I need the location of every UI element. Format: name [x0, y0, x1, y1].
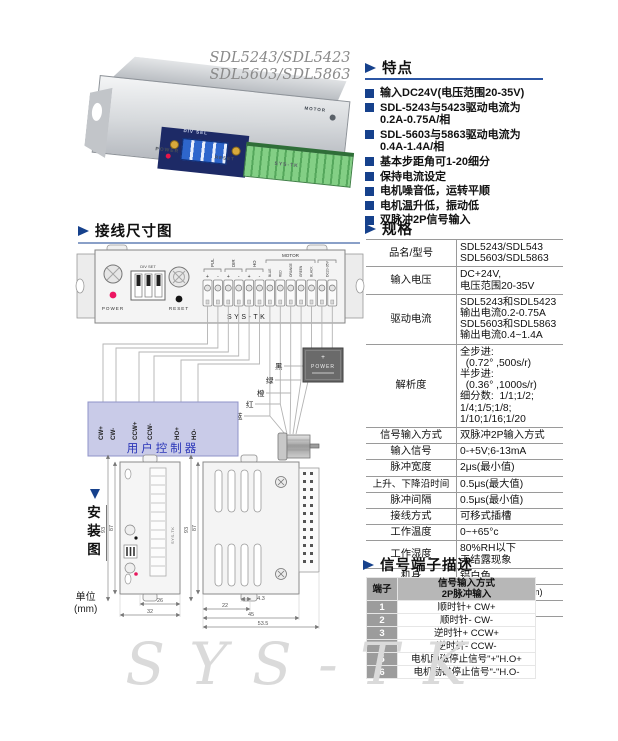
- spec-value: 0.5μs(最小值): [457, 492, 564, 508]
- feature-item: SDL-5243与5423驱动电流为 0.2A-0.75A/相: [365, 102, 617, 127]
- spec-label: 脉冲宽度: [366, 460, 457, 476]
- svg-text:BLUE: BLUE: [268, 269, 272, 277]
- feature-item: 基本步距角可1-20细分: [365, 156, 617, 169]
- user-controller-box: CW+ CW- CCW+ CCW- HO+ HO- 用户控制器: [88, 402, 238, 456]
- feature-text: 保持电流设定: [380, 171, 446, 184]
- signals-heading-text: 信号端子描述: [380, 554, 473, 575]
- feature-text: SDL-5603与5863驱动电流为 0.4A-1.4A/相: [380, 129, 521, 154]
- connector-pin-block: [299, 468, 319, 572]
- dip-label: DIV SEL: [183, 128, 208, 136]
- spec-value: 0-+5V;6-13mA: [457, 444, 564, 460]
- pin-description: 顺时针+ CW+: [398, 601, 536, 614]
- pin-number: 1: [367, 601, 398, 614]
- specs-heading-text: 规格: [382, 218, 413, 239]
- datasheet-page: DIV SEL POWER RESET SYS-TK MOTOR SDL5243…: [0, 0, 618, 741]
- power-supply-box: + POWER: [303, 348, 343, 382]
- section-heading-specs: 规格: [365, 218, 413, 239]
- spec-row: 输入电压DC+24V, 电压范围20-35V: [366, 267, 563, 294]
- pul-label: PUL: [210, 258, 215, 267]
- wiring-diagram: POWER DIV SET RESET + -: [75, 244, 365, 470]
- trim-pot-icon: [231, 146, 241, 156]
- svg-text:HO+: HO+: [174, 427, 181, 440]
- bullet-square-icon: [365, 201, 374, 210]
- spec-label: 解析度: [366, 344, 457, 427]
- bullet-square-icon: [365, 157, 374, 166]
- svg-text:HO-: HO-: [191, 429, 198, 440]
- pin-column-header: 端子: [367, 578, 398, 601]
- bullet-square-icon: [365, 89, 374, 98]
- svg-text:绿: 绿: [266, 376, 274, 385]
- spec-row: 信号输入方式双脉冲2P输入方式: [366, 428, 563, 444]
- svg-text:黑: 黑: [275, 362, 283, 371]
- spec-label: 输入信号: [366, 444, 457, 460]
- model-title: SDL5243/SDL5423 SDL5603/SDL5863: [192, 50, 368, 84]
- watermark: SYS-TK: [28, 634, 588, 694]
- feature-text: 电机温升低，振动低: [380, 200, 479, 213]
- spec-label: 脉冲间隔: [366, 492, 457, 508]
- spec-label: 驱动电流: [366, 294, 457, 344]
- signal-column-header: 信号输入方式 2P脉冲输入: [398, 578, 536, 601]
- spec-row: 解析度全步进: (0.72° ,500s/r) 半步进: (0.36° ,100…: [366, 344, 563, 427]
- feature-text: 输入DC24V(电压范围20-35V): [380, 87, 524, 100]
- arrow-right-icon: [365, 224, 376, 234]
- mounting-hole: [91, 102, 103, 121]
- feature-item: 电机噪音低，运转平顺: [365, 185, 617, 198]
- signal-row: 1顺时针+ CW+: [367, 601, 536, 614]
- spec-value: DC+24V, 电压范围20-35V: [457, 267, 564, 294]
- model-line2: SDL5603/SDL5863: [192, 67, 368, 84]
- svg-text:45: 45: [248, 612, 254, 618]
- signal-row: 2顺时针- CW-: [367, 614, 536, 627]
- dir-label: DIR: [231, 259, 236, 267]
- reset-button: [176, 296, 183, 303]
- features-underline: [365, 78, 543, 80]
- spec-row: 上升、下降沿时间0.5μs(最大值): [366, 476, 563, 492]
- dc-group-label: DC20-35V: [326, 260, 330, 277]
- spec-value: SDL5243/SDL543 SDL5603/SDL5863: [457, 240, 564, 267]
- pin-number: 2: [367, 614, 398, 627]
- spec-row: 驱动电流SDL5243和SDL5423 输出电流0.2-0.75A SDL560…: [366, 294, 563, 344]
- bullet-square-icon: [365, 130, 374, 139]
- spec-value: 0.5μs(最大值): [457, 476, 564, 492]
- spec-row: 脉冲宽度2μs(最小值): [366, 460, 563, 476]
- svg-text:橙: 橙: [257, 388, 265, 398]
- spec-row: 工作温度0~+65°c: [366, 525, 563, 541]
- svg-text:GREEN: GREEN: [299, 265, 303, 277]
- faceplate-brand: SYS-TK: [227, 314, 267, 321]
- model-line1: SDL5243/SDL5423: [192, 50, 368, 67]
- svg-text:+: +: [227, 274, 230, 280]
- signal-header-row: 端子 信号输入方式 2P脉冲输入: [367, 578, 536, 601]
- ho-label: HO: [252, 260, 257, 267]
- pin-description: 顺时针- CW-: [398, 614, 536, 627]
- signal-header-line1: 信号输入方式: [400, 578, 533, 589]
- screw-icon: [329, 114, 336, 121]
- spec-value: SDL5243和SDL5423 输出电流0.2-0.75A SDL5603和SD…: [457, 294, 564, 344]
- svg-text:+: +: [206, 274, 209, 280]
- front-view: SYS-TK 93 87 26 32: [101, 455, 180, 617]
- svg-text:26: 26: [157, 598, 163, 604]
- unit-label: 单位 (mm): [74, 592, 97, 616]
- spec-label: 信号输入方式: [366, 428, 457, 444]
- spec-row: 品名/型号SDL5243/SDL543 SDL5603/SDL5863: [366, 240, 563, 267]
- svg-text:RED: RED: [278, 270, 282, 277]
- signal-header-line2: 2P脉冲输入: [400, 589, 533, 600]
- bullet-square-icon: [365, 172, 374, 181]
- svg-text:CW+: CW+: [98, 426, 105, 440]
- arrow-right-icon: [78, 226, 89, 236]
- wiring-heading-text: 接线尺寸图: [95, 220, 173, 241]
- spec-label: 接线方式: [366, 509, 457, 525]
- svg-text:93: 93: [184, 527, 190, 533]
- terminal-strip: [150, 468, 166, 576]
- motor-group-label: MOTOR: [282, 253, 300, 258]
- svg-text:BLACK: BLACK: [310, 266, 314, 277]
- spec-value: 可移式插槽: [457, 509, 564, 525]
- front-brand-label: SYS-TK: [170, 527, 175, 544]
- svg-text:CCW-: CCW-: [147, 423, 154, 440]
- svg-text:87: 87: [192, 525, 198, 531]
- dip-switch: [180, 138, 228, 165]
- spec-row: 接线方式可移式插槽: [366, 509, 563, 525]
- svg-text:87: 87: [109, 525, 115, 531]
- bullet-square-icon: [365, 103, 374, 112]
- spec-row: 脉冲间隔0.5μs(最小值): [366, 492, 563, 508]
- spec-label: 输入电压: [366, 267, 457, 294]
- power-label: POWER: [102, 306, 124, 311]
- feature-item: SDL-5603与5863驱动电流为 0.4A-1.4A/相: [365, 129, 617, 154]
- installation-diagram: SYS-TK 93 87 26 32: [95, 452, 345, 647]
- spec-value: 全步进: (0.72° ,500s/r) 半步进: (0.36° ,1000s/…: [457, 344, 564, 427]
- arrow-right-icon: [365, 63, 376, 73]
- driver-faceplate: POWER DIV SET RESET + -: [76, 245, 364, 323]
- spec-value: 2μs(最小值): [457, 460, 564, 476]
- supply-power-label: POWER: [311, 364, 335, 370]
- svg-text:53.5: 53.5: [258, 621, 269, 627]
- spec-label: 品名/型号: [366, 240, 457, 267]
- spec-value: 双脉冲2P输入方式: [457, 428, 564, 444]
- dip-set-label: DIV SET: [140, 264, 156, 269]
- feature-item: 保持电流设定: [365, 171, 617, 184]
- feature-text: SDL-5243与5423驱动电流为 0.2A-0.75A/相: [380, 102, 521, 127]
- svg-text:4.3: 4.3: [257, 596, 265, 602]
- features-heading-text: 特点: [382, 57, 413, 78]
- motor-label: MOTOR: [304, 106, 326, 113]
- arrow-right-icon: [363, 560, 374, 570]
- feature-text: 基本步距角可1-20细分: [380, 156, 490, 169]
- svg-text:CCW+: CCW+: [132, 421, 139, 440]
- svg-text:红: 红: [246, 399, 254, 409]
- power-led: [165, 153, 170, 158]
- spec-row: 输入信号0-+5V;6-13mA: [366, 444, 563, 460]
- mounting-slot: [76, 279, 84, 293]
- svg-text:+: +: [248, 274, 251, 280]
- feature-text: 电机噪音低，运转平顺: [380, 185, 490, 198]
- supply-plus-label: +: [321, 354, 325, 361]
- section-heading-wiring: 接线尺寸图: [78, 220, 173, 241]
- power-led: [110, 292, 117, 299]
- spec-label: 工作温度: [366, 525, 457, 541]
- svg-text:93: 93: [101, 527, 107, 533]
- spec-value: 0~+65°c: [457, 525, 564, 541]
- svg-text:CW-: CW-: [110, 428, 117, 440]
- section-heading-features: 特点: [365, 57, 413, 78]
- svg-text:32: 32: [147, 609, 153, 615]
- svg-text:22: 22: [222, 603, 228, 609]
- feature-item: 电机温升低，振动低: [365, 200, 617, 213]
- features-list: 输入DC24V(电压范围20-35V) SDL-5243与5423驱动电流为 0…: [365, 87, 617, 229]
- side-view: 93 87 4.3 22 45 53.5: [184, 455, 319, 629]
- wire-color-labels: 蓝 红 橙 绿 黑: [235, 362, 283, 421]
- spec-label: 上升、下降沿时间: [366, 476, 457, 492]
- section-heading-signals: 信号端子描述: [363, 554, 473, 575]
- bullet-square-icon: [365, 187, 374, 196]
- svg-text:ORANGE: ORANGE: [289, 263, 293, 277]
- feature-item: 输入DC24V(电压范围20-35V): [365, 87, 617, 100]
- reset-label: RESET: [169, 306, 189, 311]
- mounting-slot: [356, 279, 364, 293]
